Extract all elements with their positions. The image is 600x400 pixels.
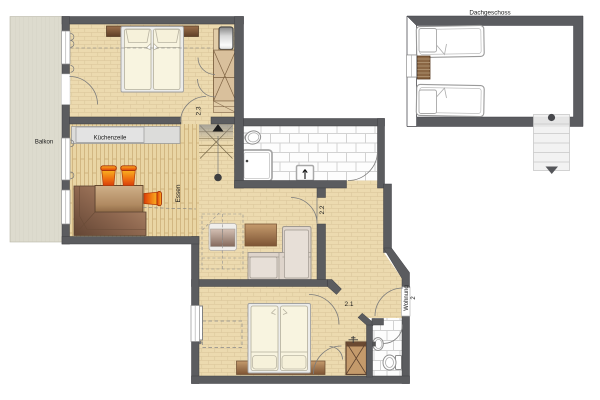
svg-text:2.2: 2.2 [319, 205, 326, 214]
svg-text:Dachgeschoss: Dachgeschoss [469, 9, 510, 16]
svg-text:Balkon: Balkon [35, 139, 53, 145]
svg-text:Küchenzeile: Küchenzeile [94, 135, 127, 141]
svg-text:2.3: 2.3 [196, 106, 203, 115]
svg-text:2.1: 2.1 [344, 301, 353, 308]
svg-text:Wohnung: Wohnung [404, 285, 410, 311]
svg-text:Essen: Essen [175, 184, 182, 202]
